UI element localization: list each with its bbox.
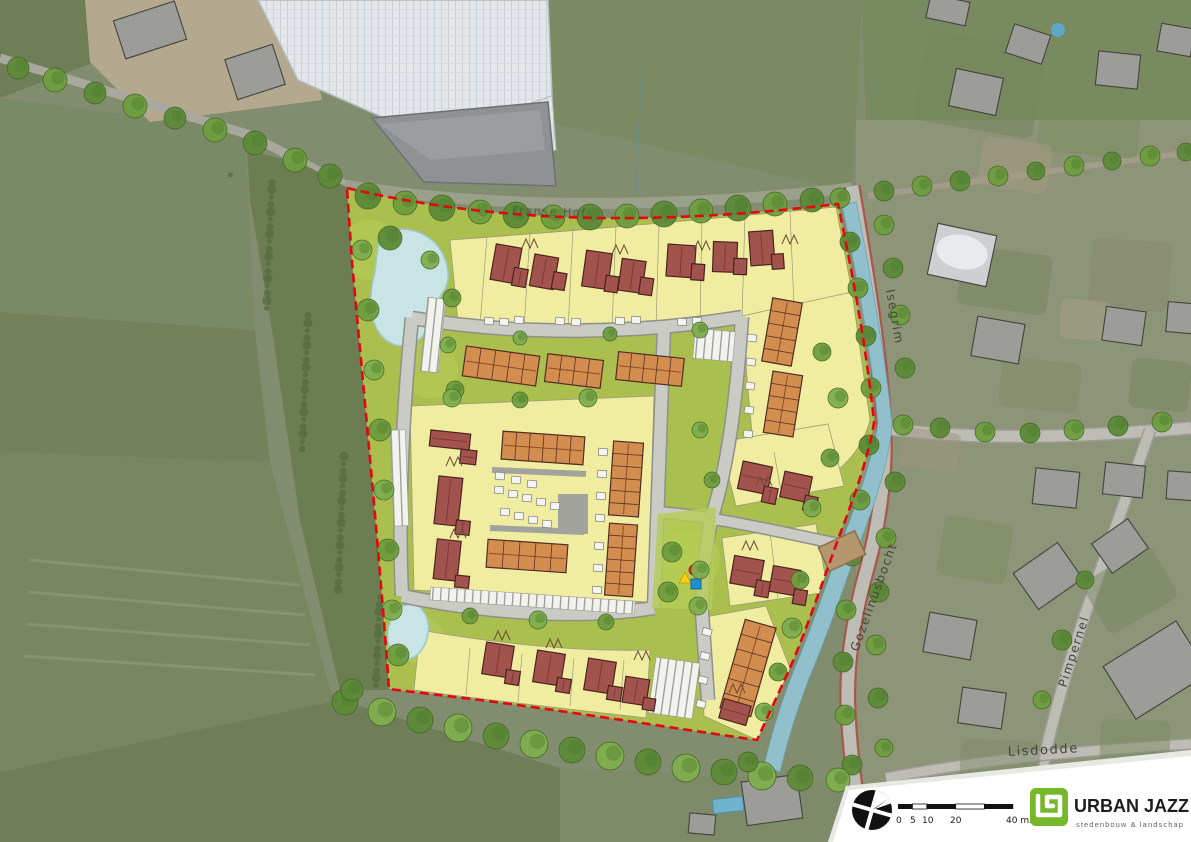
- scrub-bush: [262, 296, 271, 305]
- tree: [692, 422, 708, 438]
- tree: [835, 705, 855, 725]
- scrub-bush: [228, 173, 233, 178]
- tree: [513, 331, 527, 345]
- garden-patch: [998, 356, 1083, 414]
- street-label-franse-hof: Franse Hof: [512, 204, 587, 220]
- tree: [203, 118, 227, 142]
- masterplan-svg: Franse Hof Isegrim Gozelinusbocht Pimper…: [0, 0, 1191, 842]
- tree: [836, 600, 856, 620]
- scrub-bush: [375, 639, 380, 644]
- shed: [746, 358, 756, 366]
- shed: [743, 430, 753, 438]
- scrub-bush: [337, 534, 344, 541]
- tree: [84, 82, 106, 104]
- tree: [243, 131, 267, 155]
- shed: [500, 508, 510, 516]
- tree: [7, 57, 29, 79]
- swimming-pool: [712, 796, 743, 813]
- tree: [672, 754, 700, 782]
- logo-text: URBAN JAZZ: [1074, 796, 1189, 816]
- scrub-bush: [266, 208, 275, 217]
- tree: [912, 176, 932, 196]
- scrub-bush: [267, 185, 276, 194]
- shed: [527, 480, 537, 488]
- tree: [662, 542, 682, 562]
- tree: [369, 419, 391, 441]
- scrub-bush: [339, 490, 346, 497]
- building: [923, 612, 977, 660]
- shed: [595, 514, 604, 522]
- tree: [868, 688, 888, 708]
- tree: [988, 166, 1008, 186]
- tree: [950, 171, 970, 191]
- scrub-bush: [374, 629, 383, 638]
- building: [1157, 23, 1191, 56]
- tree: [382, 600, 402, 620]
- shed: [508, 490, 518, 498]
- scrub-bush: [264, 252, 273, 261]
- tree: [387, 644, 409, 666]
- tree: [1108, 416, 1128, 436]
- scrub-bush: [340, 483, 345, 488]
- tree: [658, 582, 678, 602]
- scrub-bush: [263, 274, 272, 283]
- tree: [164, 107, 186, 129]
- scrub-bush: [339, 452, 348, 461]
- tree: [341, 679, 363, 701]
- scrub-bush: [374, 645, 381, 652]
- scrub-bush: [299, 445, 306, 452]
- scrub-bush: [336, 541, 345, 550]
- tree: [512, 392, 528, 408]
- tree: [692, 322, 708, 338]
- shed: [594, 542, 603, 550]
- scale-10: 10: [922, 816, 934, 826]
- tree: [725, 195, 751, 221]
- tree: [440, 337, 456, 353]
- tree: [615, 204, 639, 228]
- scrub-bush: [302, 379, 309, 386]
- shed: [536, 498, 546, 506]
- scrub-bush: [372, 674, 381, 683]
- tree: [377, 539, 399, 561]
- garden-patch: [1128, 357, 1191, 413]
- tree: [651, 201, 677, 227]
- terraced-block: [605, 523, 638, 597]
- tree: [850, 490, 870, 510]
- tree: [559, 737, 585, 763]
- scrub-bush: [376, 617, 381, 622]
- shed: [542, 520, 552, 528]
- scrub-bush: [304, 334, 311, 341]
- shed: [511, 476, 521, 484]
- shed: [631, 316, 640, 324]
- building: [958, 687, 1007, 729]
- tree: [895, 358, 915, 378]
- scrub-bush: [265, 268, 272, 275]
- tree: [1140, 146, 1160, 166]
- tree: [374, 480, 394, 500]
- tree: [635, 749, 661, 775]
- shed: [528, 516, 538, 524]
- tree: [43, 68, 67, 92]
- tree: [368, 698, 396, 726]
- shed: [615, 317, 624, 325]
- tree: [393, 191, 417, 215]
- tree: [704, 472, 720, 488]
- terraced-block: [545, 354, 604, 389]
- scrub-bush: [300, 423, 307, 430]
- tree: [283, 148, 307, 172]
- scrub-bush: [268, 179, 275, 186]
- tree: [885, 472, 905, 492]
- tree: [711, 759, 737, 785]
- tree: [893, 415, 913, 435]
- tree: [689, 597, 707, 615]
- tree: [840, 232, 860, 252]
- shed: [484, 317, 494, 325]
- shed: [745, 382, 755, 390]
- tree: [828, 388, 848, 408]
- garden-patch: [935, 514, 1014, 585]
- scrub-bush: [335, 579, 342, 586]
- scrub-bush: [341, 461, 346, 466]
- scrub-bush: [335, 563, 344, 572]
- shed: [514, 316, 524, 324]
- scrub-bush: [305, 328, 310, 333]
- tree: [930, 418, 950, 438]
- scale-5: 5: [910, 816, 916, 826]
- tree: [856, 326, 876, 346]
- scrub-bush: [374, 661, 379, 666]
- tree: [738, 752, 758, 772]
- scrub-bush: [265, 230, 274, 239]
- tree: [791, 571, 809, 589]
- scrub-bush: [303, 357, 310, 364]
- logo-tagline: stedenbouw & landschap: [1076, 820, 1184, 829]
- building: [1102, 462, 1145, 498]
- site-plan-map: Franse Hof Isegrim Gozelinusbocht Pimper…: [0, 0, 1191, 842]
- tree: [874, 215, 894, 235]
- shed: [744, 406, 754, 414]
- scale-0: 0: [896, 816, 902, 826]
- shed: [550, 502, 560, 510]
- shed: [747, 334, 757, 342]
- building: [1032, 468, 1080, 508]
- scrub-bush: [266, 246, 273, 253]
- scrub-bush: [298, 430, 307, 439]
- tree: [691, 561, 709, 579]
- terraced-block: [608, 441, 643, 517]
- shed: [499, 318, 509, 326]
- shed: [522, 494, 532, 502]
- tree: [1033, 691, 1051, 709]
- tree: [883, 258, 903, 278]
- tree: [1064, 420, 1084, 440]
- tree: [1020, 423, 1040, 443]
- tree: [1064, 156, 1084, 176]
- scrub-bush: [340, 468, 347, 475]
- scrub-bush: [301, 417, 306, 422]
- tree: [821, 449, 839, 467]
- scrub-bush: [302, 341, 311, 350]
- scrub-bush: [303, 319, 312, 328]
- scrub-bush: [373, 683, 378, 688]
- scrub-bush: [269, 195, 274, 200]
- tree: [579, 389, 597, 407]
- scrub-bush: [267, 223, 274, 230]
- scrub-bush: [305, 312, 312, 319]
- shed: [596, 492, 605, 500]
- shed: [571, 318, 581, 326]
- scrub-bush: [264, 290, 271, 297]
- scrub-bush: [373, 652, 382, 661]
- scrub-bush: [268, 217, 273, 222]
- tree: [1152, 412, 1172, 432]
- tree: [598, 614, 614, 630]
- scrub-bush: [301, 401, 308, 408]
- tree: [603, 327, 617, 341]
- terraced-block: [486, 539, 568, 573]
- terraced-block: [501, 431, 585, 465]
- tree: [874, 181, 894, 201]
- tree: [421, 251, 439, 269]
- building: [971, 316, 1025, 364]
- tree: [529, 611, 547, 629]
- scrub-bush: [299, 407, 308, 416]
- tree: [689, 199, 713, 223]
- garden-patch: [1037, 81, 1143, 159]
- scrub-bush: [302, 395, 307, 400]
- tree: [803, 499, 821, 517]
- shed: [495, 472, 505, 480]
- scrub-bush: [337, 550, 342, 555]
- shed: [593, 564, 602, 572]
- tree: [1027, 162, 1045, 180]
- tree: [782, 618, 802, 638]
- shed: [597, 470, 606, 478]
- scrub-bush: [264, 306, 269, 311]
- tree: [830, 188, 850, 208]
- scrub-bush: [304, 350, 309, 355]
- scrub-bush: [337, 496, 346, 505]
- tree: [444, 714, 472, 742]
- shed: [514, 512, 524, 520]
- tree: [833, 652, 853, 672]
- scrub-bush: [338, 528, 343, 533]
- tree: [520, 730, 548, 758]
- tree: [352, 240, 372, 260]
- tree: [123, 94, 147, 118]
- tree: [975, 422, 995, 442]
- tree: [1177, 143, 1191, 161]
- scrub-bush: [336, 556, 343, 563]
- tree: [1076, 571, 1094, 589]
- building: [1166, 471, 1191, 501]
- building: [1166, 302, 1191, 335]
- tree: [866, 635, 886, 655]
- scrub-bush: [373, 667, 380, 674]
- tree: [1103, 152, 1121, 170]
- shed: [555, 317, 565, 325]
- scrub-bush: [300, 385, 309, 394]
- tree: [875, 739, 893, 757]
- shed: [677, 318, 686, 325]
- tree: [407, 707, 433, 733]
- tree: [378, 226, 402, 250]
- tree: [848, 278, 868, 298]
- scrub-bush: [303, 372, 308, 377]
- tree: [596, 742, 624, 770]
- pool-top-right: [1051, 23, 1065, 37]
- scrub-bush: [339, 506, 344, 511]
- tree: [462, 608, 478, 624]
- scrub-bush: [375, 623, 382, 630]
- building: [1095, 51, 1140, 89]
- tree: [357, 299, 379, 321]
- tree: [800, 188, 824, 212]
- building: [688, 813, 716, 835]
- scale-20: 20: [950, 816, 962, 826]
- tree: [483, 723, 509, 749]
- shed: [598, 448, 607, 456]
- tree: [443, 289, 461, 307]
- scrub-bush: [338, 512, 345, 519]
- scrub-bush: [267, 201, 274, 208]
- scrub-bush: [301, 363, 310, 372]
- scrub-bush: [300, 439, 305, 444]
- scrub-bush: [336, 572, 341, 577]
- tree: [364, 360, 384, 380]
- shed: [494, 486, 504, 494]
- tree: [318, 164, 342, 188]
- playground-square-icon: [691, 579, 701, 589]
- scrub-bush: [334, 585, 343, 594]
- tree: [443, 389, 461, 407]
- building: [1102, 306, 1146, 345]
- scrub-bush: [266, 261, 271, 266]
- tree: [813, 343, 831, 361]
- scrub-bush: [267, 239, 272, 244]
- tree: [787, 765, 813, 791]
- scale-40: 40 m.: [1006, 816, 1032, 826]
- shed: [592, 586, 601, 594]
- scrub-bush: [336, 518, 345, 527]
- scrub-bush: [338, 474, 347, 483]
- scrub-bush: [265, 284, 270, 289]
